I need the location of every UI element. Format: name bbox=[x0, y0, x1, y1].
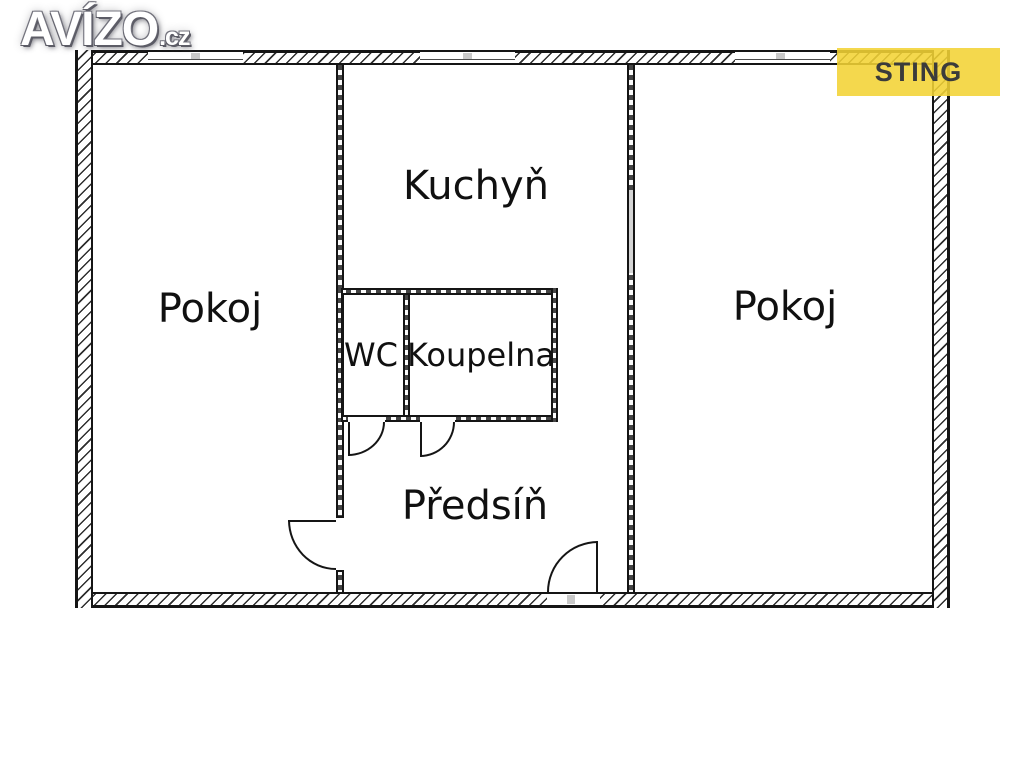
room-label-wc: WC bbox=[344, 336, 398, 374]
window-pokoj-right bbox=[735, 50, 830, 65]
window-kuchyn bbox=[420, 50, 515, 65]
wall-opening-kuchyn-pokoj bbox=[627, 190, 635, 273]
avizo-logo-text: AVÍZO bbox=[20, 2, 158, 57]
threshold-divider bbox=[567, 595, 575, 604]
door-entrance bbox=[547, 541, 598, 592]
window-divider bbox=[191, 53, 200, 59]
room-label-pokoj-right: Pokoj bbox=[733, 284, 838, 330]
outer-wall-left bbox=[75, 50, 93, 608]
bathroom-wall-left bbox=[336, 288, 343, 422]
entrance-threshold bbox=[547, 592, 600, 608]
door-pokoj-left bbox=[288, 520, 336, 570]
window-divider bbox=[776, 53, 785, 59]
sting-badge: STING bbox=[837, 48, 1000, 96]
room-label-koupelna: Koupelna bbox=[407, 336, 555, 374]
window-sill bbox=[420, 59, 515, 60]
avizo-logo-tld: .cz bbox=[159, 23, 189, 52]
room-label-predsin: Předsíň bbox=[402, 483, 548, 529]
door-jamb bbox=[336, 570, 344, 572]
room-label-kuchyn: Kuchyň bbox=[403, 163, 549, 209]
room-label-pokoj-left: Pokoj bbox=[158, 286, 263, 332]
window-divider bbox=[463, 53, 472, 59]
sting-badge-label: STING bbox=[875, 57, 963, 88]
bathroom-wall-top bbox=[336, 288, 558, 295]
outer-wall-right bbox=[932, 50, 950, 608]
avizo-logo: AVÍZO .cz bbox=[20, 2, 189, 57]
door-jamb bbox=[336, 516, 344, 518]
wall-pokoj-right-divider bbox=[627, 65, 635, 592]
outer-wall-bottom bbox=[75, 592, 950, 608]
door-wc bbox=[348, 422, 385, 456]
window-sill bbox=[735, 59, 830, 60]
door-opening-wc bbox=[348, 415, 385, 422]
door-opening-koupelna bbox=[420, 415, 455, 422]
door-koupelna bbox=[420, 422, 455, 457]
floor-plan-image: Pokoj Kuchyň WC Koupelna Předsíň Pokoj A… bbox=[0, 0, 1024, 768]
window-sill bbox=[148, 59, 243, 60]
